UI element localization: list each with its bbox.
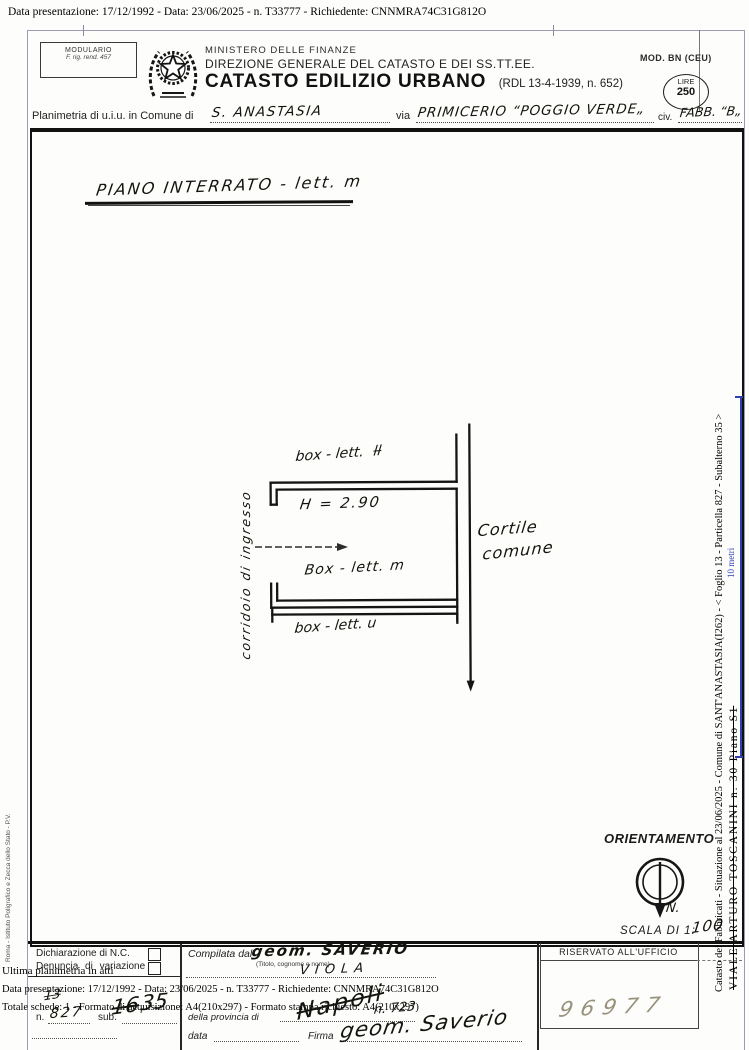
- civ-handwritten: FABB. “B„: [679, 103, 742, 120]
- dotted-fill-line: [342, 1041, 522, 1042]
- location-prefix: Planimetria di u.i.u. in Comune di: [32, 110, 193, 122]
- cadastral-document-page: Data presentazione: 17/12/1992 - Data: 2…: [0, 0, 749, 1050]
- comune-handwritten: S. ANASTASIA: [211, 103, 324, 121]
- modulario-ref: F. rig. rend. 457: [41, 54, 136, 61]
- lire-label: LIRE: [664, 77, 708, 86]
- riservato-dash-extension: [697, 960, 742, 961]
- ministry-line: MINISTERO DELLE FINANZE: [205, 45, 357, 56]
- handwritten-particella-827: 827: [49, 1004, 84, 1022]
- variation-checkbox: [148, 962, 161, 975]
- dotted-fill-line: [210, 122, 390, 123]
- riservato-underline: [540, 960, 697, 961]
- height-note: H = 2.90: [299, 495, 382, 514]
- scale-bar-line: [740, 397, 742, 757]
- provincia-label: della provincia di: [188, 1012, 259, 1023]
- handwritten-sub-35: 35: [139, 989, 169, 1016]
- footer-cell-divider: [537, 944, 539, 1050]
- civ-label: civ.: [658, 112, 672, 123]
- handwritten-note-13: 13: [44, 987, 61, 1005]
- dotted-fill-line: [122, 1023, 177, 1024]
- nc-checkbox: [148, 948, 161, 961]
- firma-field-label: Firma: [308, 1031, 334, 1042]
- data-field-label: data: [188, 1031, 207, 1042]
- lire-value: 250: [664, 86, 708, 98]
- print-credit-text: Roma - Istituto Poligrafico e Zecca dell…: [5, 784, 12, 962]
- address-struck-text: VIALE ARTURO TOSCANINI n. 30 Piano S1: [728, 698, 740, 990]
- dotted-fill-line: [214, 1041, 299, 1042]
- direction-line: DIREZIONE GENERALE DEL CATASTO E DEI SS.…: [205, 57, 535, 71]
- dotted-fill-line: [416, 122, 654, 123]
- situazione-margin-text: Catasto dei Fabbricati - Situazione al 2…: [714, 387, 725, 992]
- corridor-label: corridoio di ingresso: [238, 440, 253, 661]
- main-title-row: CATASTO EDILIZIO URBANO (RDL 13-4-1939, …: [205, 71, 623, 93]
- via-label: via: [396, 110, 410, 122]
- orientation-title: ORIENTAMENTO: [604, 831, 714, 846]
- compilata-label: Compilata dal: [188, 948, 252, 960]
- footer-cell-divider: [180, 944, 182, 1050]
- compass-icon: [632, 850, 692, 922]
- ultima-overlay-text: Ultima planimetria in atti: [2, 965, 114, 977]
- riservato-title: RISERVATO ALL'UFFICIO: [540, 947, 697, 957]
- handwritten-sub-struck: 16: [110, 992, 140, 1019]
- scale-bar-cap: [735, 756, 743, 758]
- compiler-name-handwritten: geom. SAVERIO: [250, 940, 410, 961]
- state-emblem-icon: [146, 42, 200, 100]
- presentation-data-line: Data presentazione: 17/12/1992 - Data: 2…: [8, 6, 486, 18]
- modulario-box: MODULARIO F. rig. rend. 457: [40, 42, 137, 78]
- compiler-surname-handwritten: VIOLA: [299, 961, 370, 978]
- dotted-fill-line: [678, 122, 742, 123]
- modulario-title: MODULARIO: [41, 47, 136, 54]
- scale-bar-cap: [735, 396, 743, 398]
- declaration-nc-label: Dichiarazione di N.C.: [36, 948, 130, 959]
- scale-bar-label: 10 metri: [726, 528, 736, 578]
- page-title: CATASTO EDILIZIO URBANO: [205, 71, 486, 92]
- mod-label: MOD. BN (CEU): [640, 53, 712, 63]
- registration-tick: [83, 25, 84, 36]
- dotted-fill-line: [32, 1038, 117, 1039]
- dotted-fill-line: [48, 1023, 90, 1024]
- scale-label: SCALA DI 1:: [620, 925, 696, 937]
- registration-tick: [553, 25, 554, 36]
- north-label: N.: [665, 901, 681, 916]
- box-top-struck-text: ll: [373, 443, 383, 460]
- law-reference: (RDL 13-4-1939, n. 652): [499, 78, 623, 90]
- n-label: n.: [36, 1012, 44, 1023]
- floor-title-underline: [88, 205, 350, 206]
